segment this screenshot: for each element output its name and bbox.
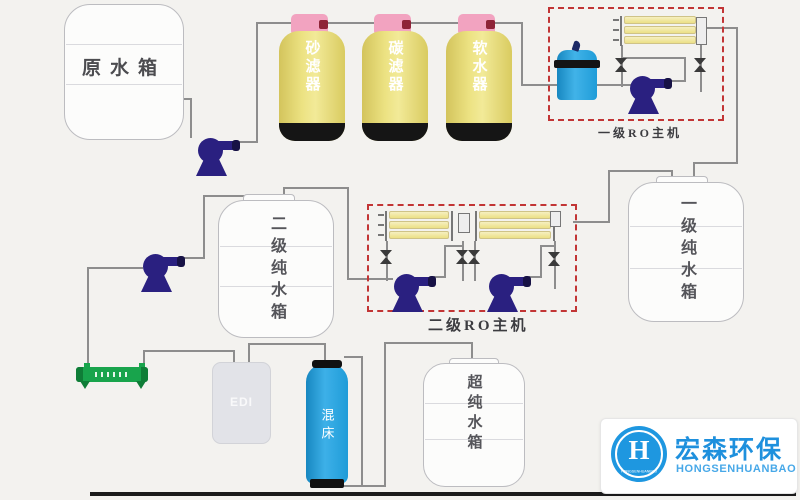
ro-stage1-label: 一级RO主机 <box>598 124 682 141</box>
brand-name: 宏森环保 <box>675 430 783 466</box>
mixed-bed-vessel: 混床 <box>306 360 348 488</box>
pump-outlet <box>177 256 185 267</box>
raw-water-tank-label: 原水箱 <box>65 53 183 80</box>
pump-outlet <box>428 276 436 287</box>
pump-outlet <box>664 78 672 89</box>
manifold-tick <box>613 19 619 21</box>
pump-base <box>141 275 172 292</box>
pipe-segment <box>87 267 89 369</box>
manifold-tick <box>378 234 384 236</box>
ultra-pure-tank: 超纯水箱 <box>423 363 525 487</box>
carbon-filter-label: 碳滤器 <box>385 40 406 94</box>
raw-water-tank: 原水箱 <box>64 4 184 140</box>
pipe-segment <box>347 187 349 280</box>
company-logo: H HONGSENHUANBAO 宏森环保 HONGSENHUANBAO <box>600 418 798 494</box>
pipe-segment <box>384 342 473 344</box>
logo-circle-icon: H HONGSENHUANBAO <box>611 426 667 482</box>
ro-stage2-label: 二级RO主机 <box>428 314 529 335</box>
membrane-tube <box>479 231 551 239</box>
cap-valve-icon <box>486 20 495 29</box>
edi-label: EDI <box>213 395 270 409</box>
pump-base <box>628 97 659 114</box>
membrane-tube <box>624 16 696 24</box>
pipe-segment <box>521 22 523 85</box>
valve-icon <box>615 58 627 72</box>
water-treatment-flow-diagram: 原水箱 砂滤器 碳滤器 软水器 一级RO主机 <box>0 0 800 500</box>
membrane-tube <box>479 221 551 229</box>
pipe-segment <box>693 162 738 164</box>
manifold-tick <box>613 29 619 31</box>
valve-icon <box>468 250 480 264</box>
manifold <box>475 211 477 241</box>
manifold <box>620 16 622 46</box>
uv-sterilizer-icon <box>76 367 148 382</box>
pump-base <box>392 295 423 312</box>
manifold-tick <box>378 224 384 226</box>
pipe-segment <box>183 257 205 259</box>
stage2-pure-tank: 二级纯水箱 <box>218 200 334 338</box>
tank-seam <box>66 84 182 85</box>
uv-foot <box>136 381 146 389</box>
pump-base <box>196 159 227 176</box>
tank-seam <box>66 44 182 45</box>
pipe-segment <box>143 350 234 352</box>
membrane-tube <box>389 231 449 239</box>
membrane-tube <box>624 36 696 44</box>
pipe-segment <box>608 170 610 223</box>
manifold <box>451 211 453 241</box>
logo-ring-text: HONGSENHUANBAO <box>619 470 659 474</box>
ultra-pure-tank-label: 超纯水箱 <box>464 374 485 454</box>
membrane-tube <box>389 211 449 219</box>
membrane-tube <box>389 221 449 229</box>
sand-filter-label: 砂滤器 <box>302 40 323 94</box>
pump-icon <box>392 272 436 312</box>
pump-icon <box>141 252 185 292</box>
uv-port <box>139 363 145 368</box>
pipe-segment <box>203 195 205 259</box>
pump-outlet <box>523 276 531 287</box>
manifold-tick <box>378 214 384 216</box>
brand-romanized: HONGSENHUANBAO <box>676 463 796 475</box>
valve-icon <box>456 250 468 264</box>
filter-base <box>362 123 428 141</box>
pipe-segment <box>88 267 143 269</box>
manifold <box>385 211 387 241</box>
pump-outlet <box>232 140 240 151</box>
carbon-filter-vessel: 碳滤器 <box>362 31 428 141</box>
logo-monogram: H <box>611 435 667 466</box>
mixed-bed-cap <box>310 479 344 488</box>
filter-band <box>554 60 600 68</box>
valve-icon <box>548 252 560 266</box>
pipe-segment <box>361 356 363 486</box>
precision-filter-icon <box>557 50 597 100</box>
pump-icon <box>628 74 672 114</box>
pipe-segment <box>248 343 250 363</box>
pipe-segment <box>736 27 738 164</box>
uv-port <box>84 363 90 368</box>
pipe-segment <box>608 170 673 172</box>
pump-base <box>487 295 518 312</box>
sand-filter-vessel: 砂滤器 <box>279 31 345 141</box>
softener-vessel: 软水器 <box>446 31 512 141</box>
stage1-pure-tank-label: 一级纯水箱 <box>674 195 698 305</box>
valve-icon <box>380 250 392 264</box>
cap-valve-icon <box>319 20 328 29</box>
stage2-pure-tank-label: 二级纯水箱 <box>264 215 288 325</box>
stage1-pure-tank: 一级纯水箱 <box>628 182 744 322</box>
pipe-segment <box>256 22 258 142</box>
cap-valve-icon <box>402 20 411 29</box>
uv-foot <box>80 381 90 389</box>
filter-base <box>446 123 512 141</box>
pump-icon <box>487 272 531 312</box>
filter-base <box>279 123 345 141</box>
manifold-block <box>550 211 561 227</box>
membrane-tube <box>479 211 551 219</box>
pipe-segment <box>283 187 349 189</box>
uv-ticks <box>95 372 129 377</box>
pipe-segment <box>344 485 386 487</box>
membrane-tube <box>624 26 696 34</box>
valve-icon <box>694 58 706 72</box>
manifold-tick <box>613 39 619 41</box>
softener-label: 软水器 <box>469 40 490 94</box>
pipe-segment <box>190 98 192 138</box>
pump-icon <box>196 136 240 176</box>
manifold-block <box>696 17 707 45</box>
mixed-bed-label: 混床 <box>318 408 337 444</box>
mixed-bed-cap <box>312 360 342 368</box>
pipe-segment <box>573 221 609 223</box>
pipe-segment <box>384 342 386 487</box>
edi-module: EDI <box>212 362 271 444</box>
pipe-segment <box>248 343 326 345</box>
manifold-block <box>458 213 470 233</box>
